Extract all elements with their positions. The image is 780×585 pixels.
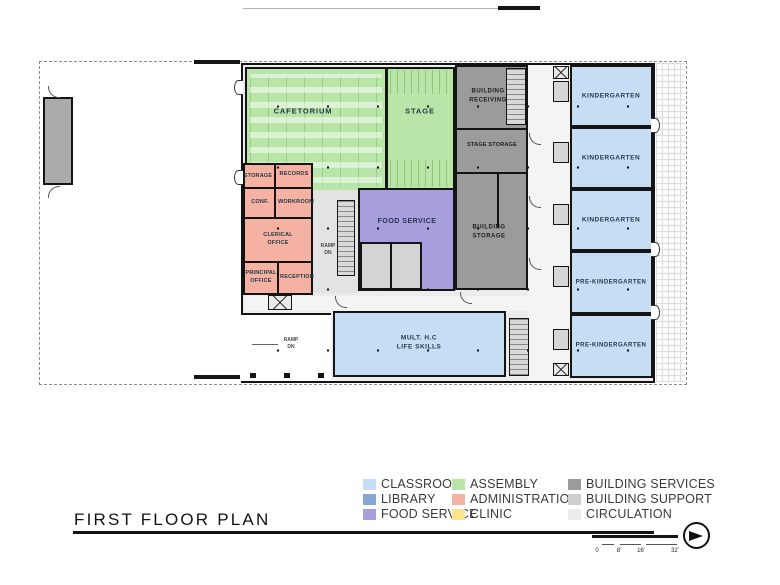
canopy-column (284, 373, 290, 378)
legend-label: BUILDING SUPPORT (586, 493, 712, 506)
legend-label: ADMINISTRATION (470, 493, 579, 506)
legend-label: ASSEMBLY (470, 478, 538, 491)
legend-label: CIRCULATION (586, 508, 672, 521)
elevator-icon (268, 295, 292, 310)
legend-swatch-classroom (363, 479, 376, 490)
legend-item: ASSEMBLY (452, 479, 579, 490)
ramp-arrow-line (252, 344, 278, 345)
scale-segment (646, 544, 677, 545)
interior-wall (390, 244, 392, 288)
exterior-walkway (241, 313, 331, 381)
stage-riser-pattern (390, 70, 451, 94)
canopy-column (250, 373, 256, 378)
interior-wall (497, 174, 499, 228)
scale-bar (592, 535, 678, 538)
interior-wall (274, 187, 276, 219)
toilet-room (553, 329, 569, 350)
exterior-door-icon (234, 80, 243, 95)
legend-swatch-circulation (568, 509, 581, 520)
interior-wall (243, 217, 313, 219)
room-kindergarten-1 (570, 65, 653, 127)
title-underline (73, 531, 654, 534)
legend-item: CLINIC (452, 509, 579, 520)
room-pre-kindergarten-2 (570, 314, 653, 378)
legend-swatch-food-service (363, 509, 376, 520)
legend-column-3: BUILDING SERVICES BUILDING SUPPORT CIRCU… (568, 479, 715, 520)
scale-tick-8: 8' (617, 548, 621, 554)
exterior-door-icon (651, 305, 660, 320)
page-title: FIRST FLOOR PLAN (74, 510, 270, 530)
exterior-door-icon (234, 170, 243, 185)
legend-swatch-library (363, 494, 376, 505)
room-pre-kindergarten-1 (570, 251, 653, 314)
stairs-icon (337, 200, 355, 276)
scale-tick-0: 0 (595, 548, 598, 554)
exterior-door-icon (651, 242, 660, 257)
legend-swatch-administration (452, 494, 465, 505)
exterior-door-icon (651, 118, 660, 133)
toilet-room (553, 204, 569, 225)
legend-swatch-assembly (452, 479, 465, 490)
room-kindergarten-3 (570, 189, 653, 251)
legend-label: BUILDING SERVICES (586, 478, 715, 491)
interior-wall (274, 163, 276, 189)
toilet-room (553, 142, 569, 163)
scale-segment (602, 544, 614, 545)
canopy-wall-mark-top (194, 60, 240, 64)
legend-swatch-clinic (452, 509, 465, 520)
legend-swatch-building-support (568, 494, 581, 505)
toilet-room (553, 266, 569, 287)
toilet-room (553, 81, 569, 102)
interior-wall (277, 261, 279, 295)
canopy-wall-mark-bottom (194, 375, 240, 379)
interior-wall (455, 172, 528, 174)
roof-edge-mark (498, 6, 540, 10)
floor-plan-page: CAFETORIUM STAGE BUILDING RECEIVING STAG… (0, 0, 780, 585)
elevator-icon (553, 363, 569, 376)
north-arrow-icon (683, 522, 710, 549)
legend-item: BUILDING SUPPORT (568, 494, 715, 505)
scale-tick-32: 32' (671, 548, 679, 554)
stairs-icon (509, 318, 529, 376)
legend-swatch-building-services (568, 479, 581, 490)
legend-item: CIRCULATION (568, 509, 715, 520)
legend-label: LIBRARY (381, 493, 436, 506)
scale-tick-16: 16' (637, 548, 645, 554)
stage-riser-pattern (390, 160, 451, 187)
legend-item: BUILDING SERVICES (568, 479, 715, 490)
legend-column-2: ASSEMBLY ADMINISTRATION CLINIC (452, 479, 579, 520)
stairs-icon (506, 68, 526, 125)
paved-grid-area (656, 63, 685, 382)
interior-wall (455, 128, 528, 130)
room-mult-hc-life-skills (333, 311, 506, 377)
site-structure (43, 97, 73, 185)
legend-label: CLINIC (470, 508, 512, 521)
legend-item: ADMINISTRATION (452, 494, 579, 505)
elevator-icon (553, 66, 569, 79)
scale-segment (620, 544, 641, 545)
interior-wall (243, 187, 313, 189)
roof-overhang-line (243, 8, 539, 9)
room-kindergarten-2 (570, 127, 653, 189)
north-arrow-pointer (689, 531, 703, 541)
legend-label: CLASSROOM (381, 478, 463, 491)
canopy-column (318, 373, 324, 378)
